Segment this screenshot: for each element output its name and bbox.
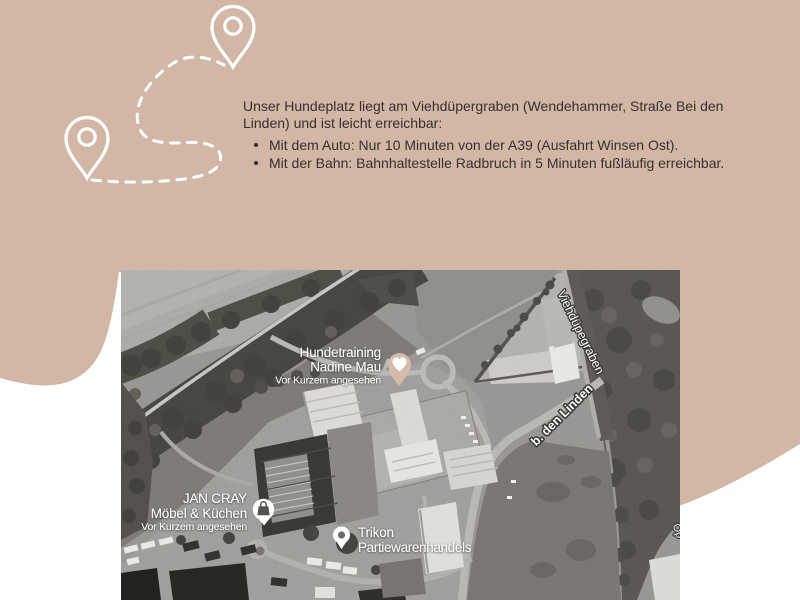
svg-text:Hundetraining: Hundetraining xyxy=(300,345,381,360)
svg-text:Vor Kurzem angesehen: Vor Kurzem angesehen xyxy=(275,375,381,387)
svg-text:Vor Kurzem angesehen: Vor Kurzem angesehen xyxy=(141,521,247,533)
svg-text:Partiewarenhandels: Partiewarenhandels xyxy=(358,540,472,555)
svg-text:Trikon: Trikon xyxy=(358,525,394,540)
svg-text:JAN CRAY: JAN CRAY xyxy=(183,491,247,506)
svg-text:Möbel & Küchen: Möbel & Küchen xyxy=(151,506,247,521)
svg-text:Nadine Mau: Nadine Mau xyxy=(310,360,381,375)
